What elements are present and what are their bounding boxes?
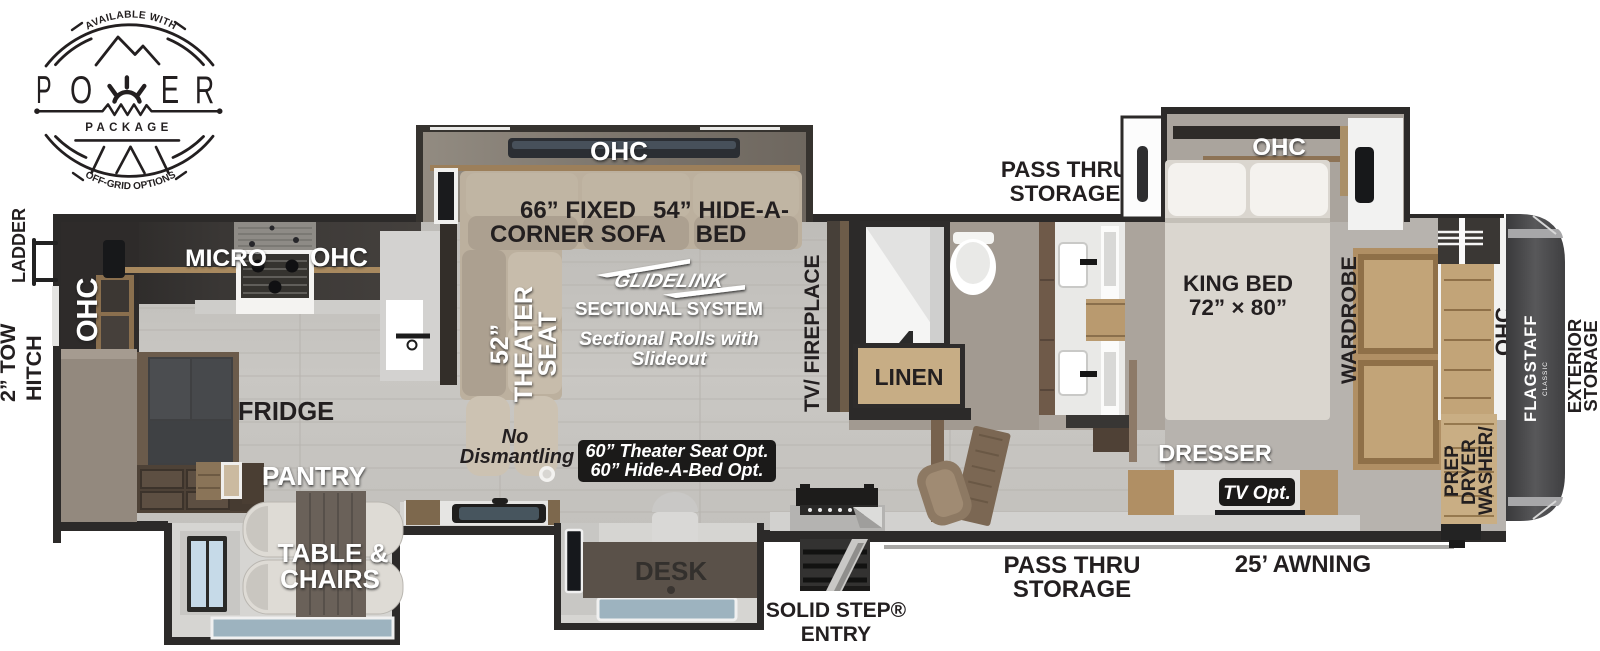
svg-text:No: No (502, 426, 529, 448)
svg-text:STORAGE: STORAGE (1010, 181, 1121, 206)
svg-text:KING BED: KING BED (1183, 271, 1293, 296)
svg-text:60” Hide-A-Bed Opt.: 60” Hide-A-Bed Opt. (590, 460, 763, 480)
svg-text:DRESSER: DRESSER (1158, 440, 1272, 466)
svg-text:E: E (161, 69, 179, 112)
svg-text:PANTRY: PANTRY (262, 461, 366, 491)
svg-text:STORAGE: STORAGE (1580, 320, 1600, 411)
svg-text:Dismantling: Dismantling (460, 446, 574, 468)
svg-text:TV Opt.: TV Opt. (1223, 483, 1291, 504)
svg-text:BED: BED (696, 221, 747, 248)
svg-text:MICRO: MICRO (185, 245, 267, 272)
svg-text:PASS THRU: PASS THRU (1004, 552, 1141, 579)
svg-text:2” TOW: 2” TOW (0, 323, 20, 402)
svg-text:60” Theater Seat Opt.: 60” Theater Seat Opt. (585, 441, 768, 461)
svg-text:CORNER SOFA: CORNER SOFA (490, 221, 666, 248)
svg-text:OHC: OHC (590, 136, 648, 166)
svg-text:O: O (70, 69, 92, 112)
svg-text:54” HIDE-A-: 54” HIDE-A- (653, 197, 789, 224)
svg-text:25’ AWNING: 25’ AWNING (1235, 551, 1371, 578)
svg-text:HITCH: HITCH (22, 335, 46, 401)
svg-text:ENTRY: ENTRY (801, 623, 871, 646)
svg-text:STORAGE: STORAGE (1013, 576, 1131, 603)
svg-text:PREP: PREP (1442, 445, 1463, 497)
svg-text:PACKAGE: PACKAGE (85, 122, 172, 134)
svg-text:72” × 80”: 72” × 80” (1189, 295, 1287, 320)
svg-text:Slideout: Slideout (632, 349, 708, 370)
svg-text:OHC: OHC (1252, 134, 1305, 161)
svg-text:OHC: OHC (310, 242, 368, 272)
svg-text:FLAGSTAFF: FLAGSTAFF (1522, 314, 1540, 422)
svg-text:SECTIONAL SYSTEM: SECTIONAL SYSTEM (575, 298, 763, 319)
svg-text:SEAT: SEAT (534, 312, 562, 377)
svg-text:WARDROBE: WARDROBE (1337, 256, 1361, 384)
svg-text:Sectional Rolls with: Sectional Rolls with (579, 329, 758, 350)
svg-text:OHC: OHC (72, 278, 104, 343)
svg-text:DESK: DESK (635, 556, 707, 586)
svg-text:CLASSIC: CLASSIC (1542, 361, 1549, 396)
svg-text:TV/ FIREPLACE: TV/ FIREPLACE (801, 254, 824, 412)
svg-text:LINEN: LINEN (875, 364, 944, 390)
svg-text:R: R (195, 69, 214, 112)
svg-text:LADDER: LADDER (9, 208, 29, 283)
svg-text:66” FIXED: 66” FIXED (520, 197, 636, 224)
svg-text:FRIDGE: FRIDGE (238, 398, 334, 426)
svg-text:PASS THRU: PASS THRU (1001, 157, 1129, 182)
svg-text:P: P (36, 69, 52, 112)
svg-text:SOLID STEP®: SOLID STEP® (766, 599, 907, 622)
svg-text:CHAIRS: CHAIRS (280, 564, 380, 594)
